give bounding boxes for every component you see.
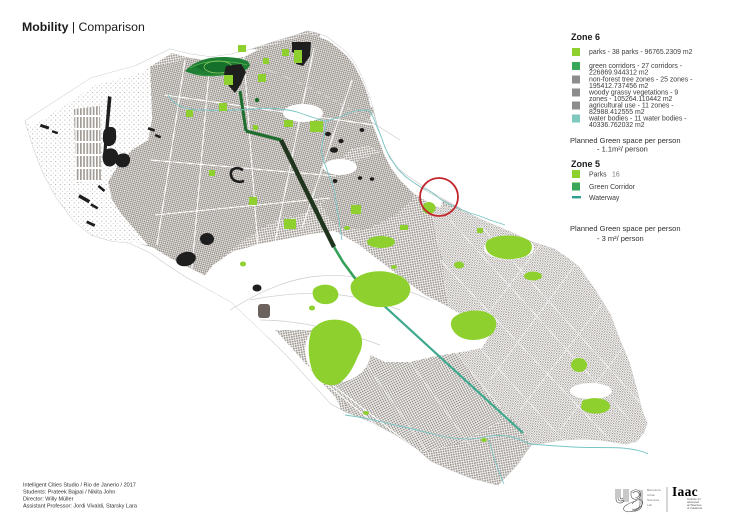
- svg-text:Zone 5: Zone 5: [571, 159, 600, 169]
- svg-text:Intelligent Cities Studio / Ri: Intelligent Cities Studio / Rio de Janer…: [23, 483, 136, 489]
- svg-text:16: 16: [612, 172, 620, 179]
- svg-text:- 1.1m²/ person: - 1.1m²/ person: [597, 145, 648, 154]
- svg-text:Sciences: Sciences: [647, 498, 660, 502]
- svg-text:Mobility | Comparison: Mobility | Comparison: [22, 20, 145, 34]
- svg-text:Urban: Urban: [647, 493, 656, 497]
- svg-text:40336.762032 m2: 40336.762032 m2: [589, 122, 645, 129]
- svg-text:- 3 m²/ person: - 3 m²/ person: [597, 234, 644, 243]
- svg-text:226869.944312 m2: 226869.944312 m2: [589, 69, 649, 76]
- svg-text:Students: Prateek Bajpai / Nik: Students: Prateek Bajpai / Nikita John: [23, 490, 115, 496]
- svg-text:Barcelona: Barcelona: [647, 488, 661, 492]
- svg-text:Lab: Lab: [647, 503, 652, 507]
- svg-text:Green Corridor: Green Corridor: [589, 184, 636, 191]
- svg-text:Waterway: Waterway: [589, 195, 620, 202]
- svg-text:Assistant Professor: Jordi Viv: Assistant Professor: Jordi Vivaldi, Star…: [23, 504, 138, 510]
- svg-text:Planned Green space per person: Planned Green space per person: [570, 224, 681, 233]
- svg-text:parks - 38 parks - 96765.2309: parks - 38 parks - 96765.2309 m2: [589, 49, 693, 56]
- svg-text:Zone 6: Zone 6: [571, 32, 600, 42]
- svg-text:of Catalonia: of Catalonia: [687, 506, 702, 510]
- svg-text:Director: Willy Müller: Director: Willy Müller: [23, 497, 74, 503]
- svg-text:Parks: Parks: [589, 172, 607, 179]
